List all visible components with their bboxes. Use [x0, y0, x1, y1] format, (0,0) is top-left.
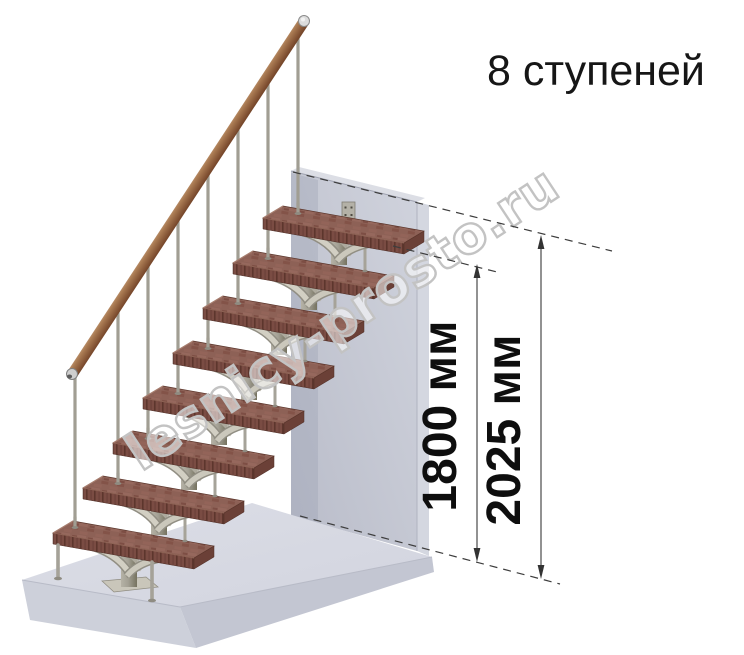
post-foot — [205, 347, 212, 350]
dimension-label-1800: 1800 мм — [414, 320, 467, 511]
post-foot — [115, 482, 122, 485]
arrow-down-icon — [538, 565, 545, 579]
post-foot — [212, 495, 217, 497]
post-foot — [72, 526, 79, 529]
post-foot — [265, 257, 272, 260]
post-foot — [272, 405, 277, 407]
staircase-illustration: lesnicy-prosto.ru 1800 мм 2025 мм 8 ступ… — [0, 0, 744, 655]
handrail-bottom-cap — [67, 369, 78, 380]
post-foot — [182, 540, 187, 542]
arrow-down-icon — [474, 548, 481, 562]
handrail-top-cap — [299, 16, 310, 27]
post-foot — [295, 212, 302, 215]
dimension-label-2025: 2025 мм — [478, 334, 531, 525]
page-title: 8 ступеней — [487, 47, 705, 95]
scene-svg: lesnicy-prosto.ru 1800 мм 2025 мм 8 ступ… — [0, 0, 744, 655]
arrow-up-icon — [538, 235, 545, 249]
post-foot — [235, 302, 242, 305]
post-foot — [242, 450, 247, 452]
dimension-2025: 2025 мм — [478, 235, 544, 579]
